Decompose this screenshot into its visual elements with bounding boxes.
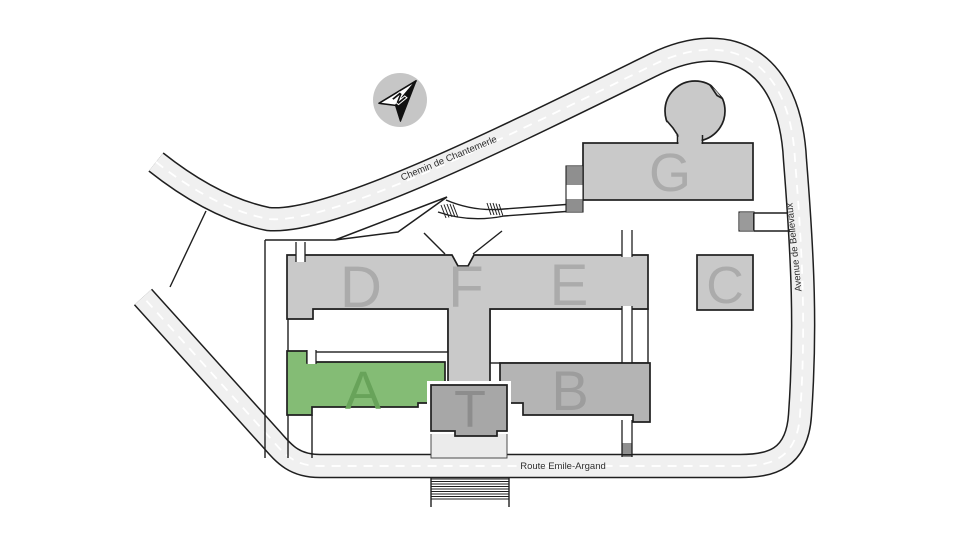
connector-d-a-slot <box>307 350 316 364</box>
building-f-label: F <box>448 255 483 320</box>
stairs-b-south-icon <box>622 444 632 456</box>
building-b-label: B <box>551 359 588 422</box>
building-t-label: T <box>454 381 486 439</box>
connector-d-a <box>307 350 316 364</box>
building-a-label: A <box>345 361 381 421</box>
connector-d-north <box>296 242 305 262</box>
stairs-g-west-frame <box>566 166 583 212</box>
connector-b-south-slot <box>623 420 632 444</box>
stairs-avenue-icon <box>741 213 753 230</box>
building-e-label: E <box>550 253 589 318</box>
stairs-south-icon <box>431 479 509 499</box>
stairs-g-west <box>566 166 583 212</box>
connector-e-south <box>623 306 632 365</box>
stairs-avenue-east <box>739 212 754 231</box>
connector-e-north <box>622 230 632 257</box>
campus-map: D F E G C A B T Chemin de Chantemerle Av… <box>0 0 960 540</box>
building-g-label: G <box>649 143 691 203</box>
building-d-label: D <box>340 255 382 320</box>
road-emile-argand-label: Route Emile-Argand <box>520 461 606 472</box>
building-c-label: C <box>706 257 744 315</box>
